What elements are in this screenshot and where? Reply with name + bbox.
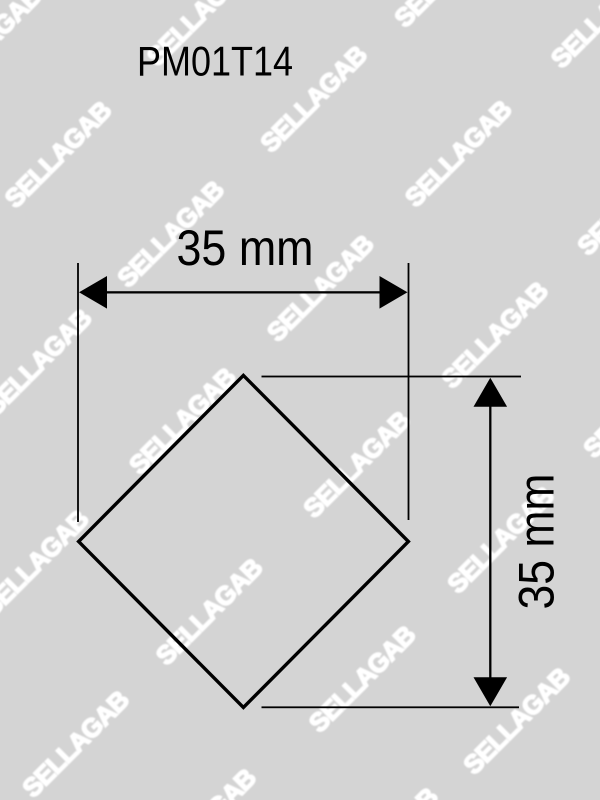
svg-text:35 mm: 35 mm bbox=[177, 219, 314, 276]
svg-text:35 mm: 35 mm bbox=[508, 474, 565, 610]
svg-text:PM01T14: PM01T14 bbox=[137, 38, 293, 85]
